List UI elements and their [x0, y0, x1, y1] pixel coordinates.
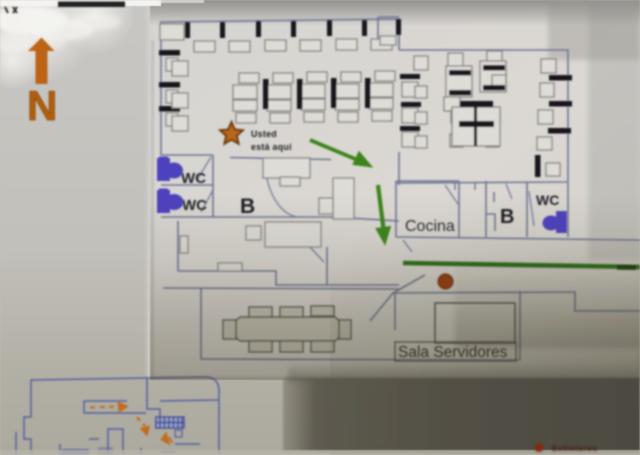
- svg-text:Usted: Usted: [251, 129, 277, 139]
- svg-text:Extintores: Extintores: [552, 444, 598, 453]
- svg-text:WC: WC: [181, 170, 206, 187]
- svg-text:N: N: [27, 82, 57, 129]
- svg-text:está aquí: está aquí: [251, 142, 292, 152]
